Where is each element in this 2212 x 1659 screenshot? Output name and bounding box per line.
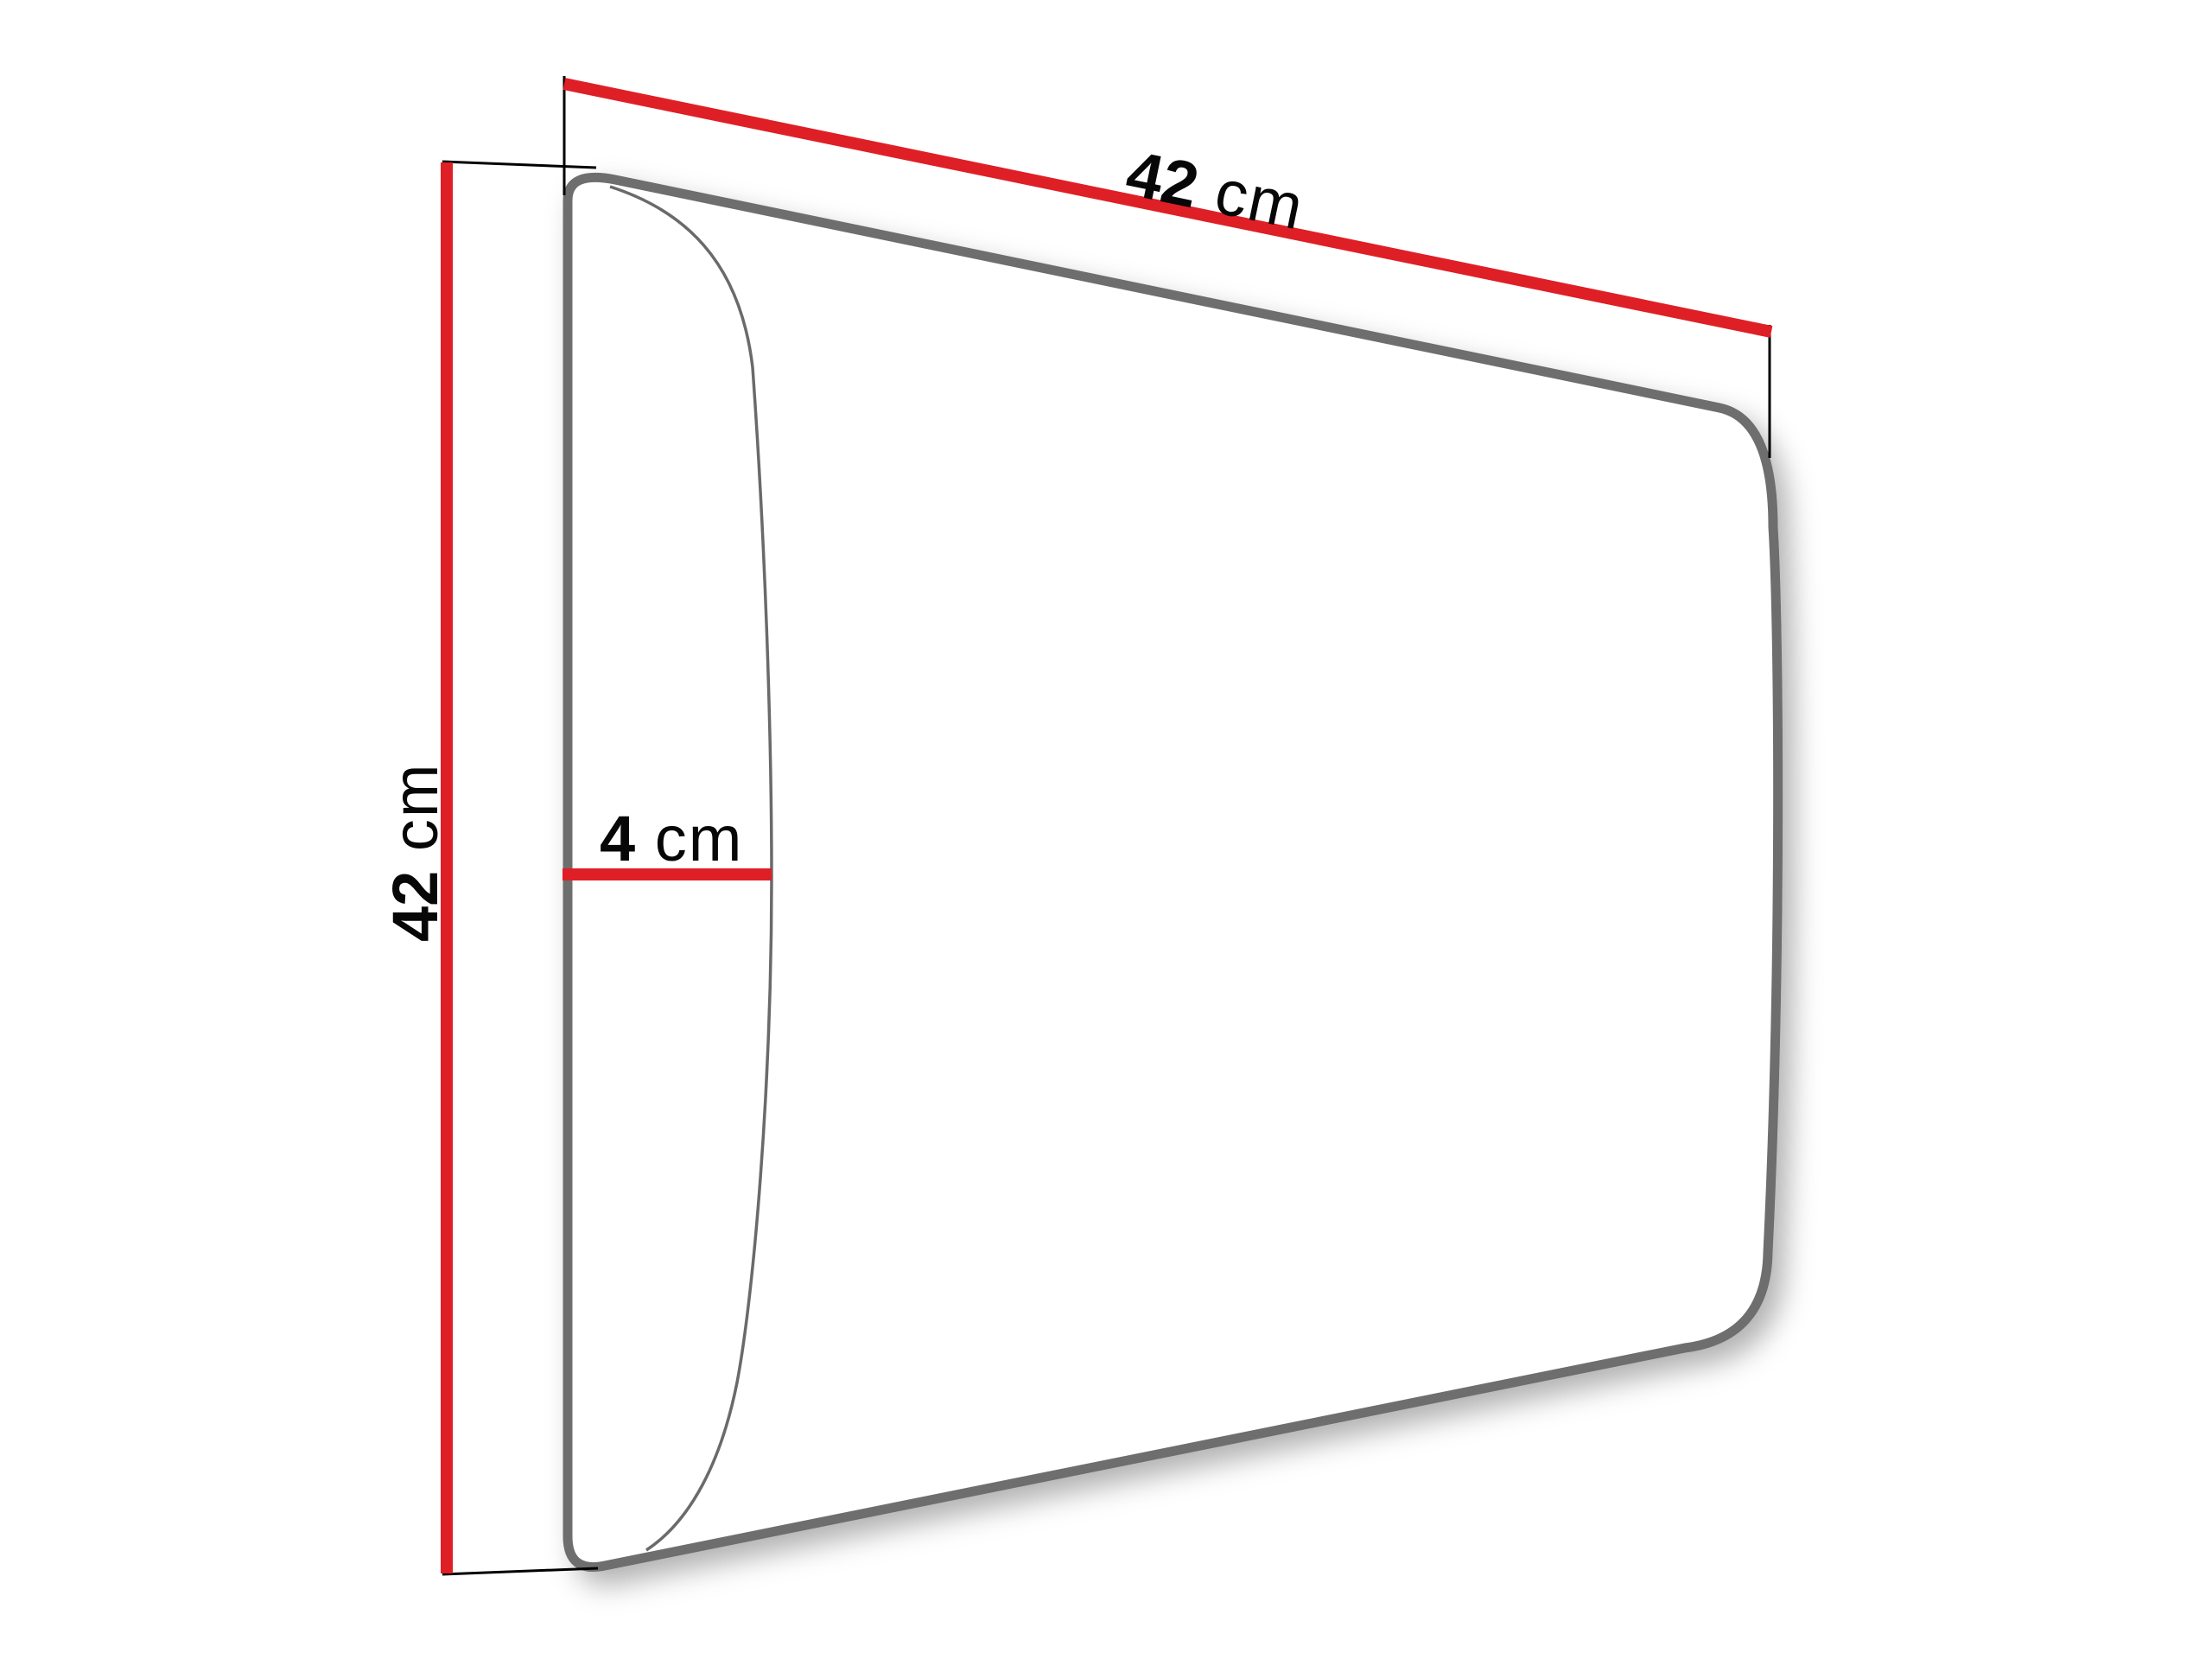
depth-dimension-label: 4 cm <box>600 803 743 874</box>
panel-dimension-diagram: 42 cm 42 cm 4 cm <box>0 0 2212 1659</box>
width-value: 42 <box>1121 137 1205 221</box>
depth-value: 4 <box>600 803 635 874</box>
height-unit: cm <box>379 762 451 851</box>
height-value: 42 <box>379 871 451 942</box>
depth-unit: cm <box>655 803 744 874</box>
